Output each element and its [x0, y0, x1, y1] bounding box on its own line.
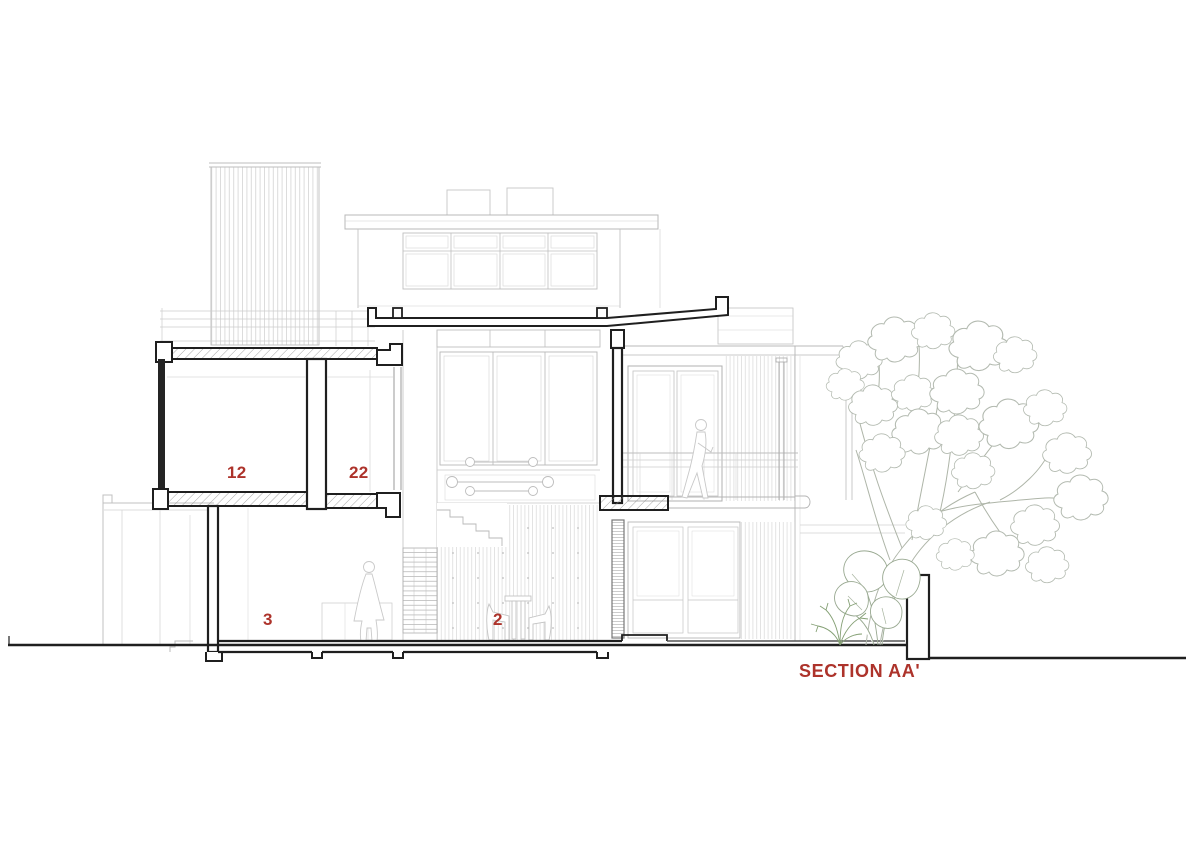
section-title: SECTION AA' — [799, 662, 920, 680]
person-room3 — [354, 562, 384, 642]
handrail-bar-details — [447, 458, 554, 496]
roof-tower — [209, 163, 321, 345]
section-drawing-canvas: 12 22 3 2 SECTION AA' — [0, 0, 1200, 848]
section-linework — [0, 0, 1200, 848]
tree-foliage — [826, 313, 1108, 583]
clerestory-block — [345, 188, 660, 308]
room-label-12: 12 — [227, 464, 247, 481]
lean-to-structure — [103, 495, 214, 652]
room-label-2: 2 — [493, 611, 503, 628]
room-label-3: 3 — [263, 611, 273, 628]
room-label-22: 22 — [349, 464, 369, 481]
person-balcony — [682, 420, 713, 499]
